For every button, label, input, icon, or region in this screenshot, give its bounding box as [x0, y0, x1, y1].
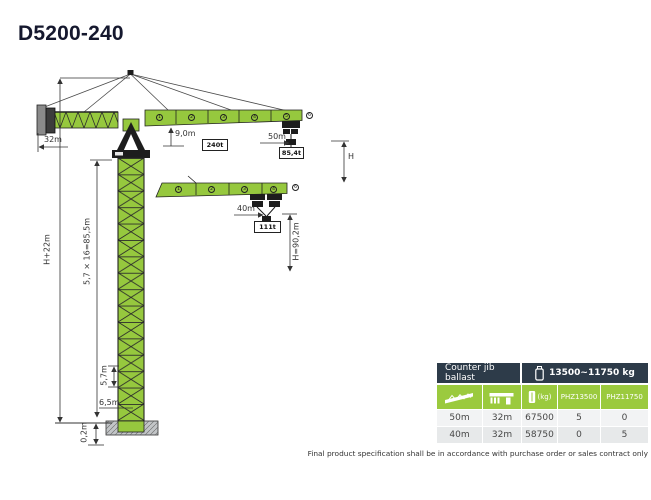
- ballast-table: Counter jib ballast 13500~11750 kg: [437, 363, 648, 444]
- header-ballast-range: 13500~11750 kg: [522, 363, 648, 383]
- jib40-section-1: 1: [175, 186, 182, 193]
- table-header-row: Counter jib ballast 13500~11750 kg: [437, 363, 648, 383]
- disclaimer-text: Final product specification shall be in …: [308, 449, 648, 458]
- jib50-section-6: 6: [306, 112, 313, 119]
- max-load-box: 240t: [202, 139, 228, 151]
- ballast-block-icon: [535, 366, 544, 381]
- table-row-40m: 40m 32m 58750 0 5: [437, 427, 648, 443]
- ballast-weight-unit: (kg): [538, 393, 552, 401]
- foundation: [55, 421, 158, 435]
- col-phz13500: PHZ13500: [558, 385, 601, 409]
- dim-jib40-length: 40m: [237, 204, 255, 213]
- apex-point: [128, 70, 134, 75]
- header-counter-jib-ballast: Counter jib ballast: [437, 363, 522, 383]
- dim-total-height: H+22m: [43, 230, 52, 270]
- cell-phz11750-count: 0: [601, 410, 648, 426]
- counter-jib-length-icon: [489, 390, 515, 405]
- jib50-section-4: 4: [251, 114, 258, 121]
- jib40-section-3: 3: [241, 186, 248, 193]
- dim-hook-height-symbol: H: [348, 152, 354, 161]
- cell-phz13500-count: 0: [558, 427, 601, 443]
- cell-counter-jib-length: 32m: [483, 410, 522, 426]
- jib50-tip-load-box: 85,4t: [279, 147, 304, 159]
- mast: [118, 158, 144, 421]
- jib-length-icon: [444, 390, 476, 404]
- counter-jib: [37, 105, 118, 135]
- table-row-50m: 50m 32m 67500 5 0: [437, 410, 648, 426]
- cell-phz11750-count: 5: [601, 427, 648, 443]
- dim-base-height: 6,5m: [99, 398, 120, 407]
- jib40-section-4: 4: [270, 186, 277, 193]
- table-column-icons-row: (kg) PHZ13500 PHZ11750: [437, 385, 648, 409]
- jib50-section-5: 5: [283, 113, 290, 120]
- jib50-section-2: 2: [188, 114, 195, 121]
- col-jib-length: [437, 385, 483, 409]
- cell-ballast-weight: 67500: [522, 410, 558, 426]
- jib40-section-6: 6: [292, 184, 299, 191]
- dim-jib50-length: 50m: [268, 132, 286, 141]
- pendant-lines: [42, 74, 292, 112]
- ballast-weight-icon: [528, 390, 536, 404]
- cell-jib-length: 50m: [437, 410, 483, 426]
- page-title: D5200-240: [18, 22, 124, 46]
- cell-jib-length: 40m: [437, 427, 483, 443]
- dim-mast-formula: 5,7 × 16=85,5m: [83, 212, 92, 292]
- jib50-section-3: 3: [220, 114, 227, 121]
- cell-ballast-weight: 58750: [522, 427, 558, 443]
- col-counter-jib-length: [483, 385, 522, 409]
- dim-min-radius: 9,0m: [175, 129, 196, 138]
- col-phz11750: PHZ11750: [601, 385, 648, 409]
- ballast-range-label: 13500~11750 kg: [549, 368, 635, 378]
- dim-counter-jib-length: 32m: [44, 135, 62, 144]
- dim-mast-section-height: 5,7m: [100, 364, 109, 388]
- col-ballast-weight: (kg): [522, 385, 558, 409]
- dim-jib40-hook-height: H=90,2m: [292, 209, 301, 275]
- counter-jib-ballast-blocks: [37, 105, 46, 135]
- jib40-tip-load-box: 111t: [254, 221, 281, 233]
- cell-phz13500-count: 5: [558, 410, 601, 426]
- spec-sheet: D5200-240 32m 9,0m 50m H 40m H=90,2m H+2…: [0, 0, 651, 500]
- jib40-section-2: 2: [208, 186, 215, 193]
- jib50-section-1: 1: [156, 114, 163, 121]
- cell-counter-jib-length: 32m: [483, 427, 522, 443]
- dim-foundation-height: 0,2m: [80, 421, 89, 445]
